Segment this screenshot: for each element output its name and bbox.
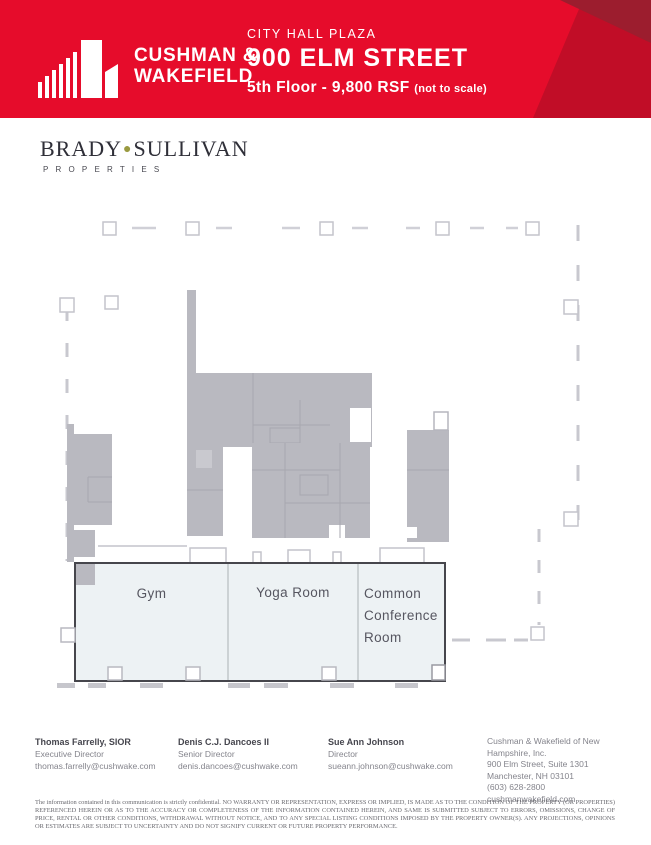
scale-note: (not to scale)	[414, 83, 487, 95]
room-label-gym: Gym	[75, 586, 228, 601]
separator-dot-icon: ●	[122, 142, 133, 157]
company-line: Manchester, NH 03101	[487, 771, 617, 783]
room-label-yoga: Yoga Room	[228, 585, 358, 600]
contact-email: thomas.farrelly@cushwake.com	[35, 760, 156, 772]
brand-line2: WAKEFIELD	[134, 67, 257, 88]
property-name: CITY HALL PLAZA	[247, 27, 487, 41]
floor-plan-drawing	[0, 195, 651, 715]
core-shapes	[187, 290, 449, 542]
brand-wordmark: CUSHMAN & WAKEFIELD	[134, 46, 257, 87]
brady-sullivan-logo: BRADY●SULLIVAN PROPERTIES	[40, 136, 249, 174]
contact-name: Sue Ann Johnson	[328, 736, 453, 748]
company-line: Cushman & Wakefield of New	[487, 736, 617, 748]
cushman-wakefield-logo: CUSHMAN & WAKEFIELD	[38, 36, 257, 98]
contact-name: Thomas Farrelly, SIOR	[35, 736, 156, 748]
brady-sullivan-wordmark: BRADY●SULLIVAN	[40, 136, 249, 162]
company-line: Hampshire, Inc.	[487, 748, 617, 760]
room-label-line: Room	[364, 627, 446, 649]
contact-thomas-farrelly: Thomas Farrelly, SIOR Executive Director…	[35, 736, 156, 772]
room-label-common-conference: Common Conference Room	[364, 583, 446, 649]
property-address: 900 ELM STREET	[247, 44, 487, 73]
contact-title: Executive Director	[35, 748, 156, 760]
door-bumps	[190, 548, 424, 563]
perimeter-right	[452, 225, 578, 640]
header-title-block: CITY HALL PLAZA 900 ELM STREET 5th Floor…	[247, 27, 487, 97]
brand-line1: CUSHMAN &	[134, 46, 257, 67]
cushman-wakefield-logo-icon	[38, 36, 122, 98]
flyer-page: CUSHMAN & WAKEFIELD CITY HALL PLAZA 900 …	[0, 0, 651, 845]
floor-plan	[0, 195, 651, 715]
contact-title: Director	[328, 748, 453, 760]
sullivan-text: SULLIVAN	[133, 136, 248, 161]
properties-subtitle: PROPERTIES	[43, 165, 249, 174]
legal-disclaimer: The information contained in this commun…	[35, 799, 615, 831]
floor-info: 5th Floor - 9,800 RSF	[247, 79, 410, 96]
company-line: (603) 628-2800	[487, 782, 617, 794]
left-room-strip	[67, 424, 187, 562]
brady-text: BRADY	[40, 136, 122, 161]
company-line: 900 Elm Street, Suite 1301	[487, 759, 617, 771]
contact-email: denis.dancoes@cushwake.com	[178, 760, 298, 772]
header-banner: CUSHMAN & WAKEFIELD CITY HALL PLAZA 900 …	[0, 0, 651, 118]
contact-name: Denis C.J. Dancoes II	[178, 736, 298, 748]
room-label-line: Common	[364, 583, 446, 605]
company-address-block: Cushman & Wakefield of New Hampshire, In…	[487, 736, 617, 805]
bottom-wall-dashes	[57, 683, 418, 688]
contact-email: sueann.johnson@cushwake.com	[328, 760, 453, 772]
room-label-line: Conference	[364, 605, 446, 627]
contact-sue-ann-johnson: Sue Ann Johnson Director sueann.johnson@…	[328, 736, 453, 772]
floor-rsf-line: 5th Floor - 9,800 RSF (not to scale)	[247, 79, 487, 97]
contact-title: Senior Director	[178, 748, 298, 760]
contact-denis-dancoes: Denis C.J. Dancoes II Senior Director de…	[178, 736, 298, 772]
